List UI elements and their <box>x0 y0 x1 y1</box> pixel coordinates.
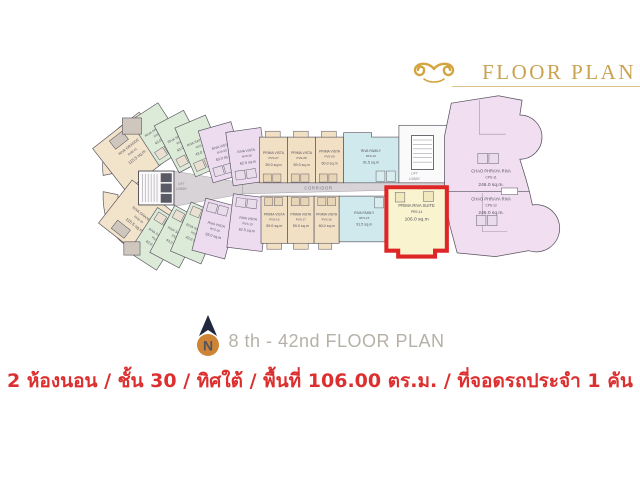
service-block <box>124 242 140 255</box>
svg-text:60.0 sq.m: 60.0 sq.m <box>319 224 335 228</box>
svg-text:CHAO PHRAYA RIVA: CHAO PHRAYA RIVA <box>471 197 511 202</box>
floor-plan-page: FLOOR PLAN RIVA GRANDE RGB-01 115.5 sq.m… <box>0 0 640 480</box>
svg-text:PVS-18: PVS-18 <box>269 217 279 221</box>
svg-text:246.0 sq.m.: 246.0 sq.m. <box>478 210 503 216</box>
svg-text:RFS-15: RFS-15 <box>359 216 369 220</box>
balcony <box>319 243 332 249</box>
svg-text:PRIMA VISTA: PRIMA VISTA <box>319 150 341 154</box>
corridor-label: CORRIDOR <box>304 185 332 190</box>
svg-text:59.0 sq.m: 59.0 sq.m <box>293 224 309 228</box>
svg-text:PVS-09: PVS-09 <box>325 155 335 159</box>
balcony <box>293 243 308 249</box>
svg-text:CHAO PHRAYA RIVA: CHAO PHRAYA RIVA <box>471 169 511 174</box>
svg-text:CPS-11: CPS-11 <box>486 175 497 179</box>
lift-lobby-right-label-line1: LIFT <box>411 172 418 176</box>
svg-text:91.5 sq.m: 91.5 sq.m <box>356 223 372 227</box>
svg-text:RIVA FAMILY: RIVA FAMILY <box>361 149 382 153</box>
svg-text:PRIMA VISTA: PRIMA VISTA <box>316 212 338 216</box>
gold-ornament-icon <box>408 58 460 86</box>
balcony <box>321 131 336 137</box>
svg-text:PRIMA VISTA: PRIMA VISTA <box>290 212 312 216</box>
compass-north-icon: N <box>195 314 221 357</box>
unit-detail-text: 2 ห้องนอน / ชั้น 30 / ทิศใต้ / พื้นที่ 1… <box>7 366 633 396</box>
tower-outline <box>445 96 560 257</box>
svg-text:91.5 sq.m: 91.5 sq.m <box>363 161 379 165</box>
svg-text:PRIMA VISTA: PRIMA VISTA <box>264 212 286 216</box>
stair-core <box>139 171 174 205</box>
balcony <box>265 131 280 137</box>
svg-text:59.0 sq.m: 59.0 sq.m <box>265 163 281 167</box>
svg-text:PRIMA RIVA SUITE: PRIMA RIVA SUITE <box>398 203 435 208</box>
svg-text:59.0 sq.m: 59.0 sq.m <box>266 224 282 228</box>
lift-lobby-left-label-line1: LIFT <box>178 182 185 186</box>
svg-text:RFS-10: RFS-10 <box>366 154 376 158</box>
svg-text:PVS-17: PVS-17 <box>296 217 306 221</box>
svg-text:CPS-12: CPS-12 <box>485 203 497 207</box>
floor-range-caption: N 8 th - 42nd FLOOR PLAN <box>0 314 640 357</box>
floor-range-text: 8 th - 42nd FLOOR PLAN <box>228 331 444 352</box>
svg-text:PVS-08: PVS-08 <box>297 156 307 160</box>
svg-text:PVS-07: PVS-07 <box>268 156 278 160</box>
svg-text:246.0 sq.m.: 246.0 sq.m. <box>478 182 503 188</box>
svg-text:RIVA FAMILY: RIVA FAMILY <box>354 211 375 215</box>
svg-text:106.0 sq.m: 106.0 sq.m <box>405 216 429 222</box>
service-block <box>122 118 141 134</box>
svg-text:PRS-14: PRS-14 <box>411 210 423 214</box>
page-title: FLOOR PLAN <box>482 60 636 85</box>
balcony <box>293 131 308 137</box>
svg-text:PRIMA VISTA: PRIMA VISTA <box>263 151 285 155</box>
floor-plan-drawing: RIVA GRANDE RGB-01 115.5 sq.m RIVA SATHO… <box>0 84 640 320</box>
tower-divider-gap <box>501 188 517 195</box>
lift-lobby-right-label-line2: LOBBY <box>409 177 421 181</box>
svg-text:PRIMA VISTA: PRIMA VISTA <box>291 151 313 155</box>
balcony <box>267 243 282 249</box>
unit-detail-bar: 2 ห้องนอน / ชั้น 30 / ทิศใต้ / พื้นที่ 1… <box>0 360 640 402</box>
svg-text:PVS-16: PVS-16 <box>322 217 332 221</box>
lift-lobby-left-label-line2: LOBBY <box>176 187 188 191</box>
lift-lobby-right-area <box>399 125 447 183</box>
svg-text:59.0 sq.m: 59.0 sq.m <box>294 163 310 167</box>
compass-letter: N <box>203 338 213 354</box>
svg-text:60.0 sq.m: 60.0 sq.m <box>322 161 338 165</box>
